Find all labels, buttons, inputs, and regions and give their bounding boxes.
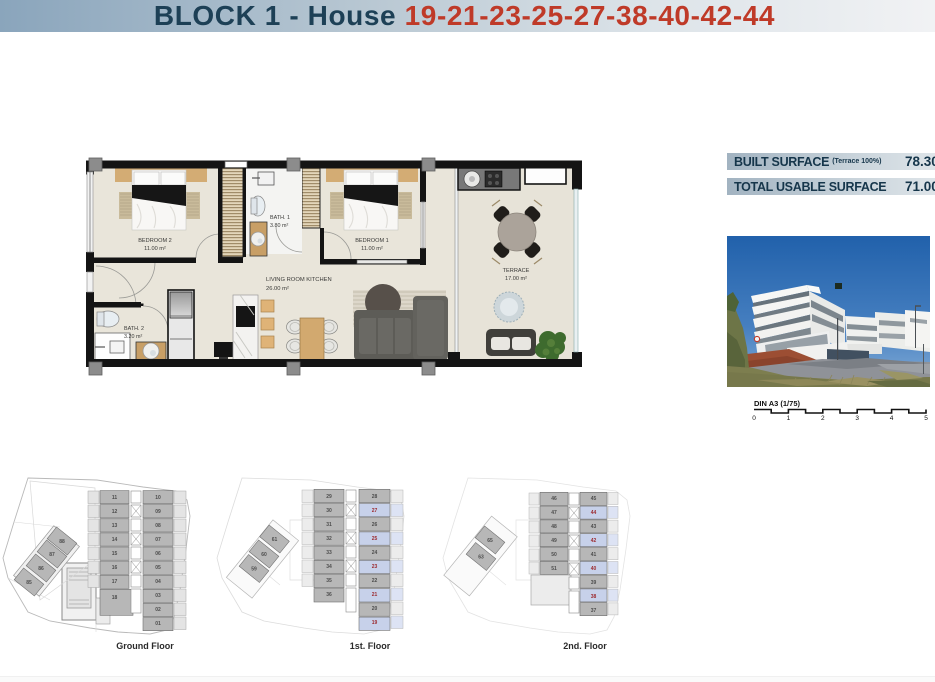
svg-text:40: 40 [591, 566, 597, 572]
svg-text:63: 63 [478, 555, 484, 561]
svg-text:45: 45 [591, 496, 597, 502]
svg-text:02: 02 [155, 607, 161, 613]
svg-text:21: 21 [372, 592, 378, 598]
svg-text:50: 50 [551, 552, 557, 558]
svg-text:88: 88 [59, 539, 65, 545]
svg-text:30: 30 [326, 508, 332, 514]
svg-text:31: 31 [326, 522, 332, 528]
svg-text:01: 01 [155, 621, 161, 627]
svg-text:06: 06 [155, 551, 161, 557]
svg-text:23: 23 [372, 564, 378, 570]
svg-text:15: 15 [112, 551, 118, 557]
svg-text:32: 32 [326, 536, 332, 542]
svg-text:19: 19 [372, 620, 378, 626]
svg-text:29: 29 [326, 494, 332, 500]
svg-text:35: 35 [326, 578, 332, 584]
svg-text:59: 59 [251, 567, 257, 573]
svg-text:37: 37 [591, 608, 597, 614]
svg-text:51: 51 [551, 566, 557, 572]
svg-text:12: 12 [112, 509, 118, 515]
svg-text:11: 11 [112, 495, 118, 501]
svg-text:24: 24 [372, 550, 378, 556]
svg-text:33: 33 [326, 550, 332, 556]
svg-text:46: 46 [551, 496, 557, 502]
svg-text:10: 10 [155, 495, 161, 501]
svg-text:61: 61 [272, 537, 278, 543]
svg-text:16: 16 [112, 565, 118, 571]
svg-text:Ground Floor: Ground Floor [116, 641, 174, 651]
svg-text:44: 44 [591, 510, 597, 516]
svg-text:20: 20 [372, 606, 378, 612]
svg-text:87: 87 [49, 552, 55, 558]
svg-text:04: 04 [155, 579, 161, 585]
svg-text:48: 48 [551, 524, 557, 530]
svg-text:47: 47 [551, 510, 557, 516]
svg-text:85: 85 [26, 580, 32, 586]
svg-text:13: 13 [112, 523, 118, 529]
svg-text:28: 28 [372, 494, 378, 500]
svg-text:49: 49 [551, 538, 557, 544]
svg-text:1st. Floor: 1st. Floor [350, 641, 391, 651]
svg-text:36: 36 [326, 592, 332, 598]
svg-text:42: 42 [591, 538, 597, 544]
svg-text:09: 09 [155, 509, 161, 515]
svg-text:86: 86 [38, 566, 44, 572]
svg-text:38: 38 [591, 594, 597, 600]
svg-text:41: 41 [591, 552, 597, 558]
svg-text:07: 07 [155, 537, 161, 543]
svg-text:17: 17 [112, 579, 118, 585]
svg-text:22: 22 [372, 578, 378, 584]
svg-text:05: 05 [155, 565, 161, 571]
svg-text:43: 43 [591, 524, 597, 530]
svg-text:2nd. Floor: 2nd. Floor [563, 641, 607, 651]
svg-text:14: 14 [112, 537, 118, 543]
svg-text:27: 27 [372, 508, 378, 514]
svg-text:34: 34 [326, 564, 332, 570]
svg-text:65: 65 [487, 538, 493, 544]
svg-text:25: 25 [372, 536, 378, 542]
svg-text:08: 08 [155, 523, 161, 529]
svg-text:60: 60 [261, 552, 267, 558]
svg-text:39: 39 [591, 580, 597, 586]
svg-text:26: 26 [372, 522, 378, 528]
svg-text:03: 03 [155, 593, 161, 599]
svg-text:18: 18 [112, 595, 118, 601]
